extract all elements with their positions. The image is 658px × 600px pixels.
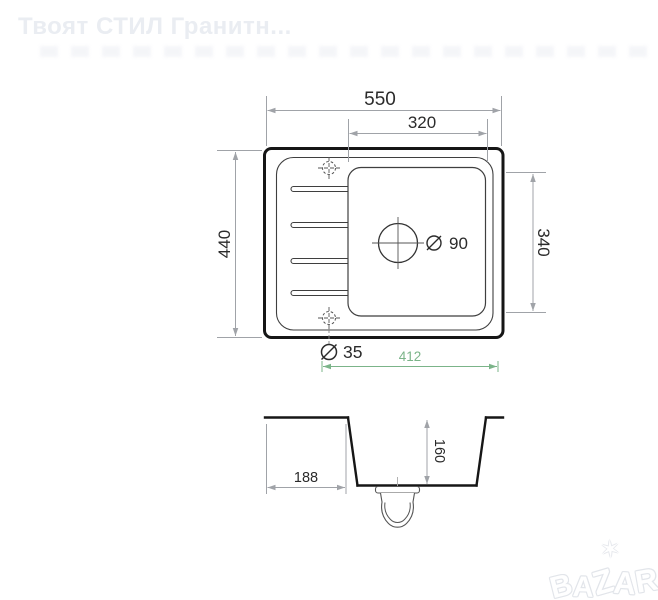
section-view: 160 188 [265,418,503,528]
basin-height-label: 160 [431,439,447,463]
overall-width-label: 550 [364,89,396,110]
tap-hole-diameter-label: 35 [343,342,362,362]
tap-hole-diameter-callout: 35 [322,342,363,362]
groove [291,223,353,228]
diameter-symbol-icon [322,345,337,360]
product-drawing-image: Твоят СТИЛ Гранитн... [0,0,658,600]
basin-depth-label: 340 [534,228,553,256]
drain-diameter-label: 90 [449,234,468,253]
dimension-drainer-width: 188 [267,424,347,494]
logo-letter: R [633,563,658,597]
groove [291,187,353,192]
groove [291,291,353,296]
drainer-width-label: 188 [294,470,318,486]
dimension-basin-depth-right: 340 [506,173,553,313]
basin-width-label: 320 [408,113,436,132]
star-icon: ✶ [599,538,621,563]
bazar-logo: ✶ B A Z A R [548,548,658,600]
dimension-overall-width: 550 [267,89,502,146]
logo-letter: B [547,570,575,600]
sink-technical-drawing: 550 320 440 340 90 [0,0,658,600]
dimension-basin-height: 160 [427,420,447,484]
cutout-width-label: 412 [399,349,422,364]
overall-depth-label: 440 [215,230,234,258]
dimension-overall-depth: 440 [215,151,262,338]
groove [291,259,353,264]
